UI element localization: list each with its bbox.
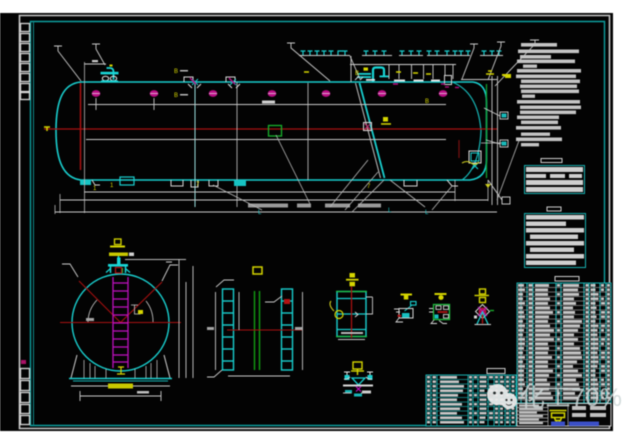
svg-text:化工70%: 化工70%	[520, 384, 623, 412]
svg-text:B: B	[174, 93, 178, 99]
svg-text:B: B	[425, 99, 429, 105]
svg-text:B: B	[355, 71, 359, 77]
svg-text:B: B	[174, 69, 178, 75]
